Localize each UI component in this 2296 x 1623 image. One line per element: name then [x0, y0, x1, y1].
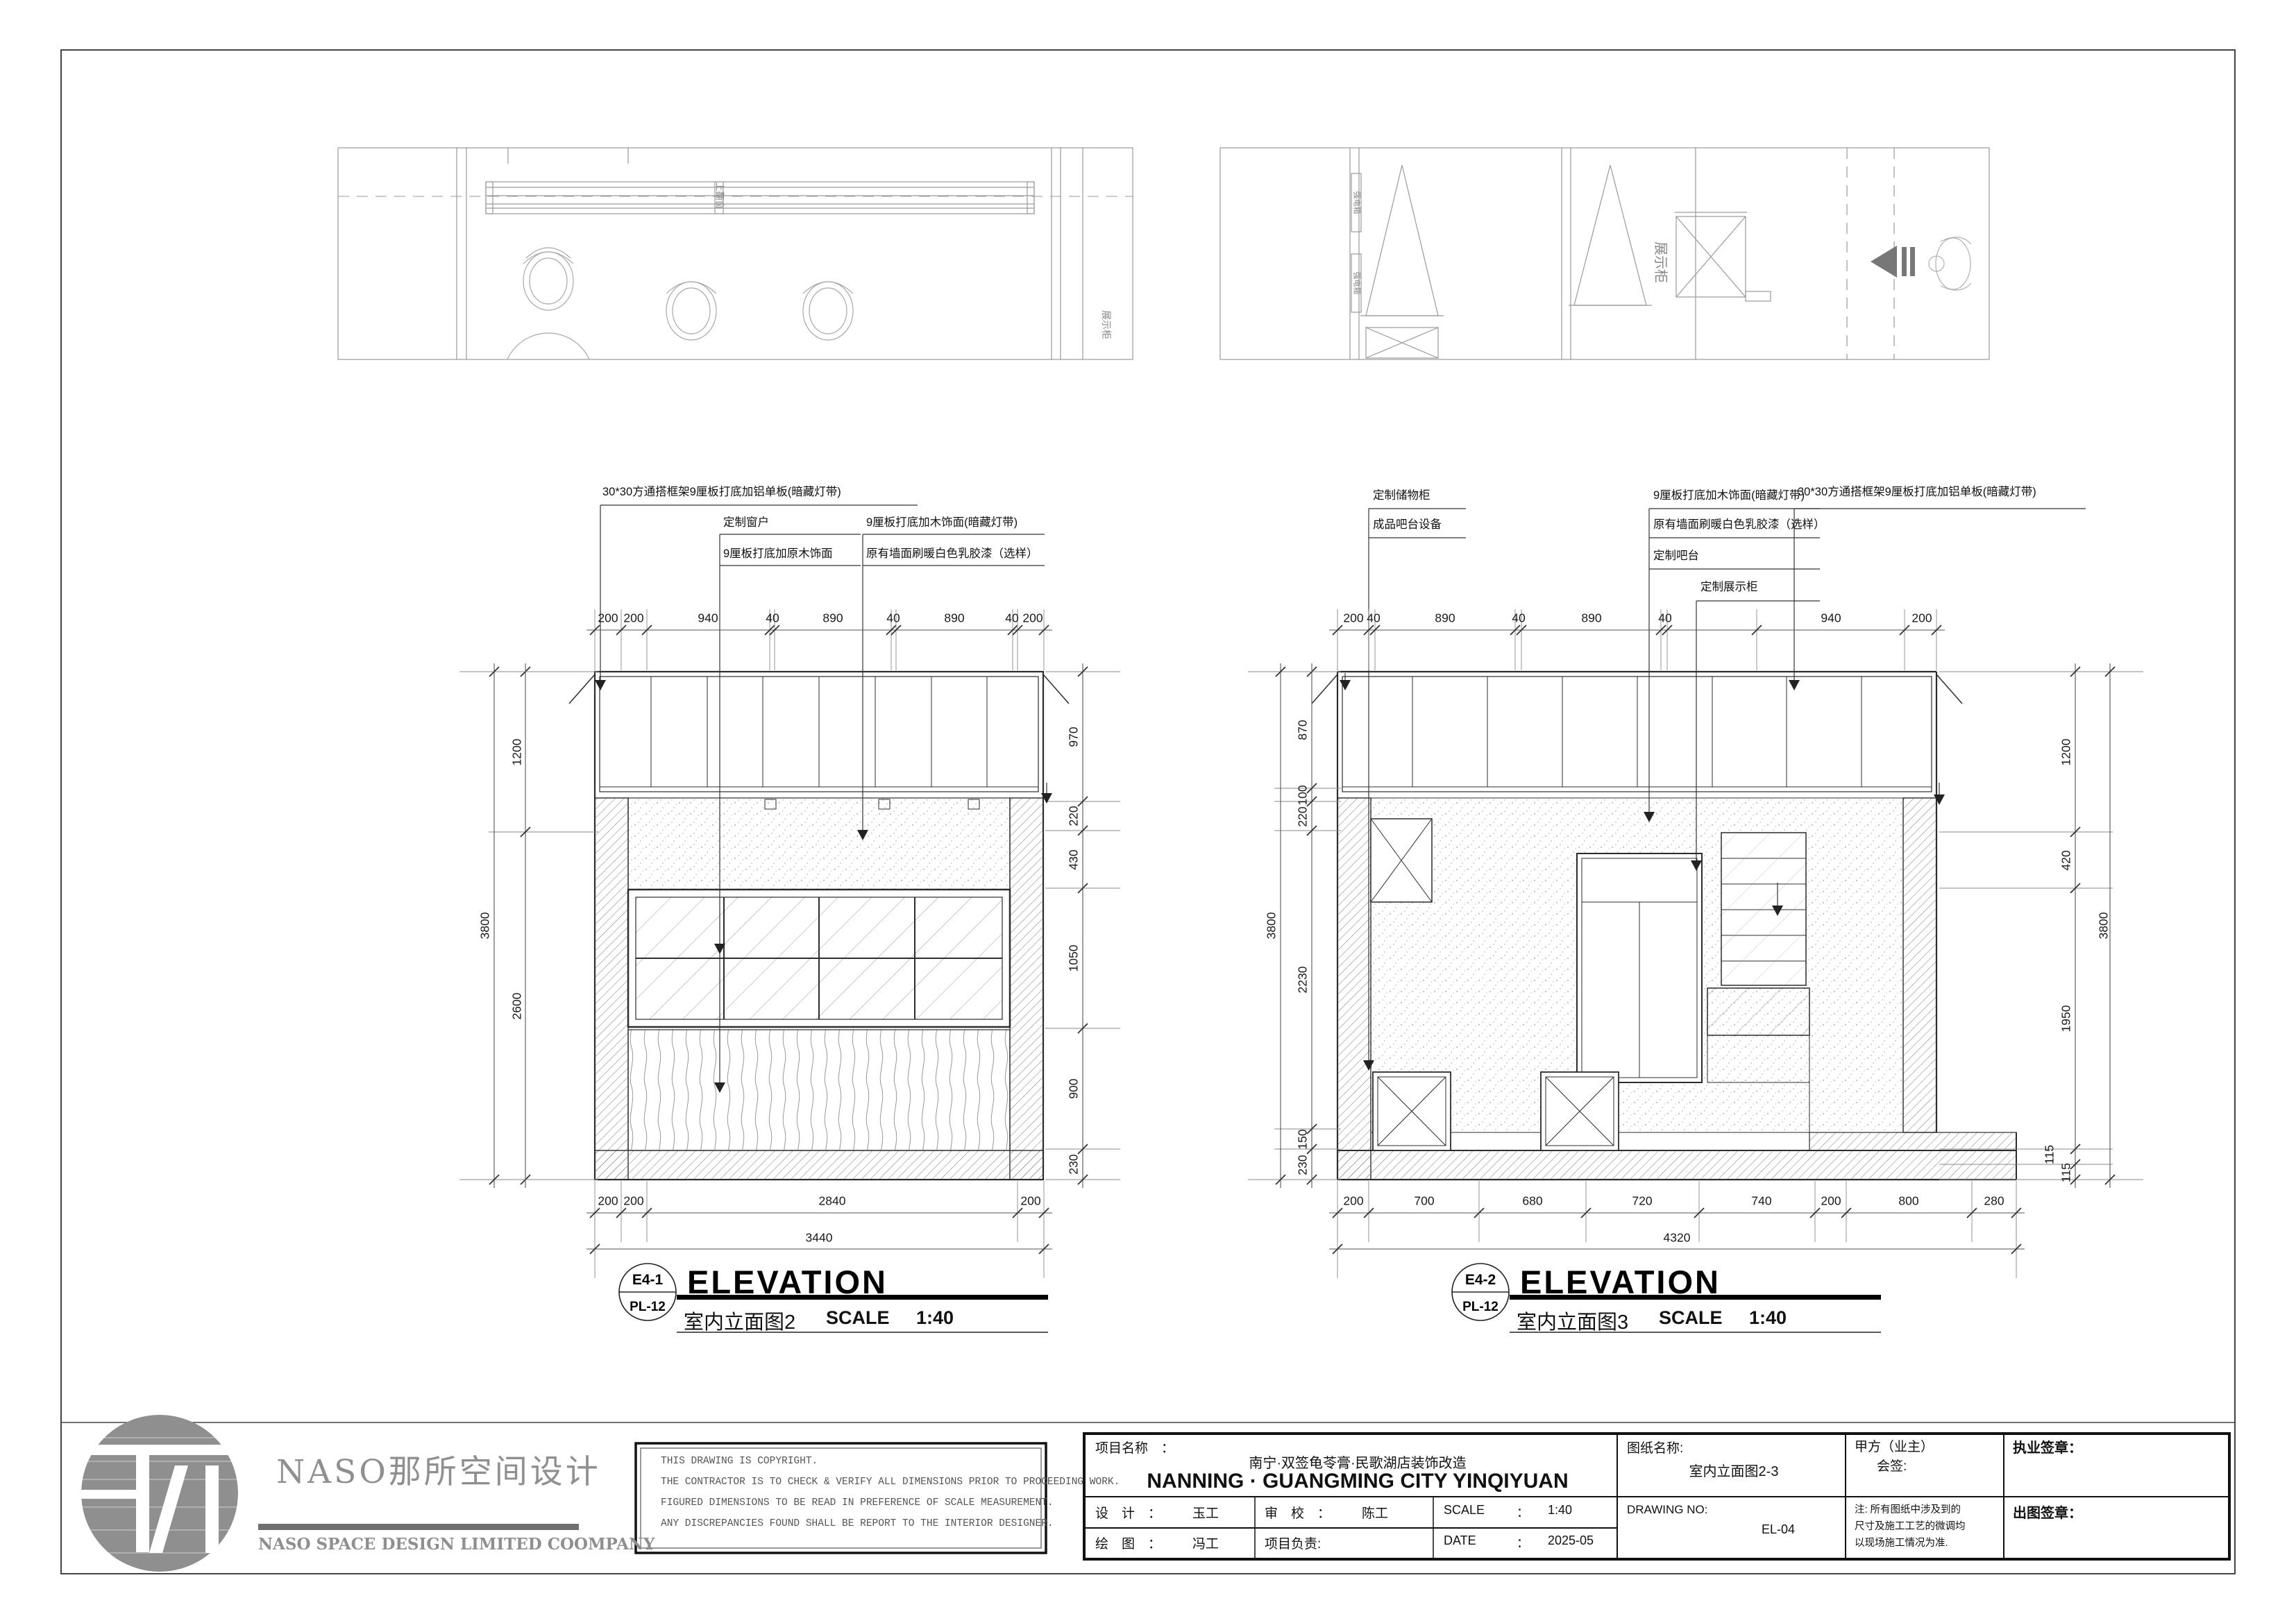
plan-text-label: 强电箱: [1353, 272, 1360, 295]
dimension-label: 900: [1067, 1078, 1080, 1098]
drawing-sheet: 30*30方通搭框架9厘板打底加铝单板(暗藏灯带) 定制窗户 9厘板打底加原木饰…: [0, 0, 2296, 1623]
scale-label: SCALE: [826, 1307, 890, 1329]
dimension-label: 420: [2060, 850, 2073, 870]
dimension-label: 115: [2060, 1163, 2073, 1182]
drawing-no-label: DRAWING NO:: [1627, 1503, 1707, 1517]
dimension-label: 2230: [1297, 967, 1309, 994]
dimension-label: 220: [1067, 806, 1080, 826]
annotation: 9厘板打底加木饰面(暗藏灯带): [1653, 490, 1805, 502]
dimension-label: 115: [2043, 1145, 2056, 1164]
project-label: 项目名称 ：: [1095, 1438, 1174, 1456]
note-line: 以现场施工情况为准.: [1855, 1535, 1948, 1549]
dimension-label: 890: [1435, 612, 1455, 624]
copyright-line: ANY DISCREPANCIES FOUND SHALL BE REPORT …: [661, 1518, 1054, 1529]
display-shelves: [1721, 833, 1806, 985]
dimension-label: 890: [1581, 612, 1601, 624]
designer-value: 玉工: [1192, 1503, 1219, 1522]
drawing-no-value: EL-04: [1762, 1522, 1795, 1537]
checker-label: 审 校 ：: [1265, 1503, 1331, 1522]
view-title-en: ELEVATION: [1520, 1263, 1721, 1301]
annotation: 30*30方通搭框架9厘板打底加铝单板(暗藏灯带): [1798, 486, 2036, 498]
dimension-label: 200: [1911, 612, 1932, 624]
dimension-label: 2600: [511, 993, 523, 1020]
middle-cabinet: [1577, 853, 1702, 1082]
project-name-cn: 南宁·双签龟苓膏·民歌湖店装饰改造: [1249, 1452, 1466, 1472]
note-line: 注: 所有图纸中涉及到的: [1855, 1502, 1961, 1516]
scale-sep: ：: [1517, 1503, 1529, 1521]
dimension-label: 200: [1022, 612, 1043, 624]
date-value: 2025-05: [1548, 1533, 1594, 1548]
dimension-label: 1200: [511, 739, 523, 766]
annotation: 定制储物柜: [1373, 490, 1430, 502]
dimension-label: 40: [1005, 612, 1018, 624]
dimension-label: 40: [1367, 612, 1380, 624]
view-sheet: PL-12: [630, 1300, 666, 1315]
dimension-label: 940: [698, 612, 718, 624]
annotation: 原有墙面刷暖白色乳胶漆（选样）: [1653, 519, 1825, 531]
client-label: 甲方（业主）: [1855, 1436, 1934, 1455]
view-title-cn: 室内立面图3: [1517, 1306, 1628, 1335]
issue-seal-label: 出图签章：: [2013, 1502, 2082, 1522]
scale-value: 1:40: [1548, 1503, 1572, 1518]
dimension-label: 1200: [2060, 739, 2073, 766]
dimension-label: 3440: [806, 1232, 833, 1244]
dimension-label: 100: [1297, 785, 1309, 805]
plan-furniture: [503, 248, 853, 423]
copyright-line: THE CONTRACTOR IS TO CHECK & VERIFY ALL …: [661, 1477, 1120, 1488]
dimension-label: 40: [1658, 612, 1671, 624]
view-ref: E4-1: [632, 1272, 663, 1289]
dimension-label: 3800: [2097, 912, 2110, 940]
dimension-label: 200: [598, 612, 618, 624]
annotation: 成品吧台设备: [1373, 519, 1442, 531]
dimension-label: 40: [1512, 612, 1525, 624]
dimension-label: 740: [1751, 1195, 1771, 1207]
dimension-label: 200: [598, 1195, 618, 1207]
plan-strip-left: [338, 148, 1133, 423]
scale-value: 1:40: [916, 1307, 954, 1329]
checker-value: 陈工: [1362, 1503, 1388, 1522]
view-ref: E4-2: [1465, 1272, 1496, 1289]
dimension-label: 3800: [479, 912, 491, 940]
dimension-label: 3800: [1265, 912, 1278, 940]
annotation: 定制窗户: [723, 517, 769, 529]
dimension-label: 280: [1984, 1195, 2004, 1207]
dimension-label: 800: [1898, 1195, 1918, 1207]
dimension-label: 1050: [1067, 945, 1080, 972]
dimension-label: 870: [1297, 720, 1309, 740]
bar-equipment-2: [1541, 1072, 1619, 1150]
bar-equipment-1: [1373, 1072, 1451, 1150]
dimension-label: 4320: [1664, 1232, 1691, 1244]
annotation: 原有墙面刷暖白色乳胶漆（选样）: [866, 548, 1038, 560]
dimension-label: 200: [1343, 612, 1363, 624]
project-name-en: NANNING · GUANGMING CITY YINQIYUAN: [1147, 1470, 1568, 1493]
dimension-label: 890: [944, 612, 964, 624]
annotation: 9厘板打底加原木饰面: [723, 548, 833, 560]
dimension-label: 150: [1297, 1129, 1309, 1149]
dimension-label: 200: [623, 1195, 643, 1207]
copyright-line: FIGURED DIMENSIONS TO BE READ IN PREFERE…: [661, 1497, 1054, 1509]
copyright-line: THIS DRAWING IS COPYRIGHT.: [661, 1456, 818, 1467]
dimension-label: 200: [1020, 1195, 1040, 1207]
display-cabinet-plan: [1675, 212, 1771, 301]
leader-arrow-icon: [1340, 680, 1351, 690]
leader-arrow-icon: [595, 680, 606, 690]
dimension-label: 200: [1821, 1195, 1841, 1207]
drafter-value: 冯工: [1192, 1533, 1219, 1552]
client-sign-label: 会签:: [1877, 1456, 1907, 1475]
dimension-label: 1950: [2060, 1005, 2073, 1033]
elevation-right-drawing: [1312, 672, 2016, 1180]
dimension-label: 430: [1067, 849, 1080, 869]
wood-panel: [628, 1030, 1010, 1150]
logo-name-cn: NASO那所空间设计: [276, 1445, 601, 1493]
plan-strip-right: [1220, 148, 1989, 359]
dimension-label: 720: [1632, 1195, 1652, 1207]
sheet-name-label: 图纸名称:: [1627, 1438, 1683, 1456]
person-figure: [1929, 237, 1971, 290]
annotation: 定制展示柜: [1700, 581, 1758, 593]
door-swing-1: [1366, 165, 1438, 316]
dimension-label: 200: [623, 612, 643, 624]
dimension-label: 40: [886, 612, 900, 624]
dimension-label: 2840: [819, 1195, 846, 1207]
elevation-left-drawing: [569, 672, 1069, 1180]
plan-text-label: 上翻窗: [716, 182, 725, 209]
plan-text-label: 强电箱: [1353, 192, 1360, 214]
license-seal-label: 执业签章：: [2013, 1436, 2082, 1456]
door-swing-2: [1574, 165, 1646, 305]
scale-label: SCALE: [1659, 1307, 1723, 1329]
dimension-label: 220: [1297, 806, 1309, 826]
dimension-label: 940: [1821, 612, 1841, 624]
annotation: 30*30方通搭框架9厘板打底加铝单板(暗藏灯带): [602, 486, 841, 498]
dimension-label: 40: [766, 612, 779, 624]
dimension-label: 230: [1067, 1154, 1080, 1174]
date-label: DATE: [1444, 1533, 1476, 1548]
note-line: 尺寸及施工工艺的微调均: [1855, 1518, 1966, 1533]
plan-text-label: 展示柜: [1101, 310, 1111, 339]
dimension-label: 970: [1067, 726, 1080, 747]
linework-canvas: [0, 0, 2296, 1623]
view-title-cn: 室内立面图2: [684, 1306, 795, 1335]
sheet-name-value: 室内立面图2-3: [1689, 1460, 1779, 1480]
date-sep: ：: [1517, 1533, 1529, 1552]
plan-text-label: 展示柜: [1653, 241, 1667, 283]
dimension-label: 680: [1522, 1195, 1542, 1207]
leader-arrow-icon: [1789, 680, 1800, 690]
dimension-label: 890: [822, 612, 843, 624]
designer-label: 设 计 ：: [1095, 1503, 1161, 1522]
dimension-label: 230: [1297, 1155, 1309, 1175]
window-grid: [628, 890, 1010, 1027]
scale-label: SCALE: [1444, 1503, 1485, 1518]
view-title-en: ELEVATION: [687, 1263, 888, 1301]
direction-arrow-icon: [1871, 246, 1915, 278]
dimension-label: 200: [1343, 1195, 1363, 1207]
plan-window-band: [486, 182, 1034, 214]
logo-name-en: NASO SPACE DESIGN LIMITED COOMPANY: [258, 1535, 655, 1554]
pm-label: 项目负责:: [1265, 1533, 1321, 1552]
annotation: 定制吧台: [1653, 550, 1699, 562]
storage-cabinet: [1371, 819, 1432, 902]
view-sheet: PL-12: [1462, 1300, 1499, 1315]
dimension-label: 700: [1414, 1195, 1434, 1207]
annotation: 9厘板打底加木饰面(暗藏灯带): [866, 517, 1018, 529]
scale-value: 1:40: [1749, 1307, 1787, 1329]
drafter-label: 绘 图 ：: [1095, 1533, 1161, 1552]
